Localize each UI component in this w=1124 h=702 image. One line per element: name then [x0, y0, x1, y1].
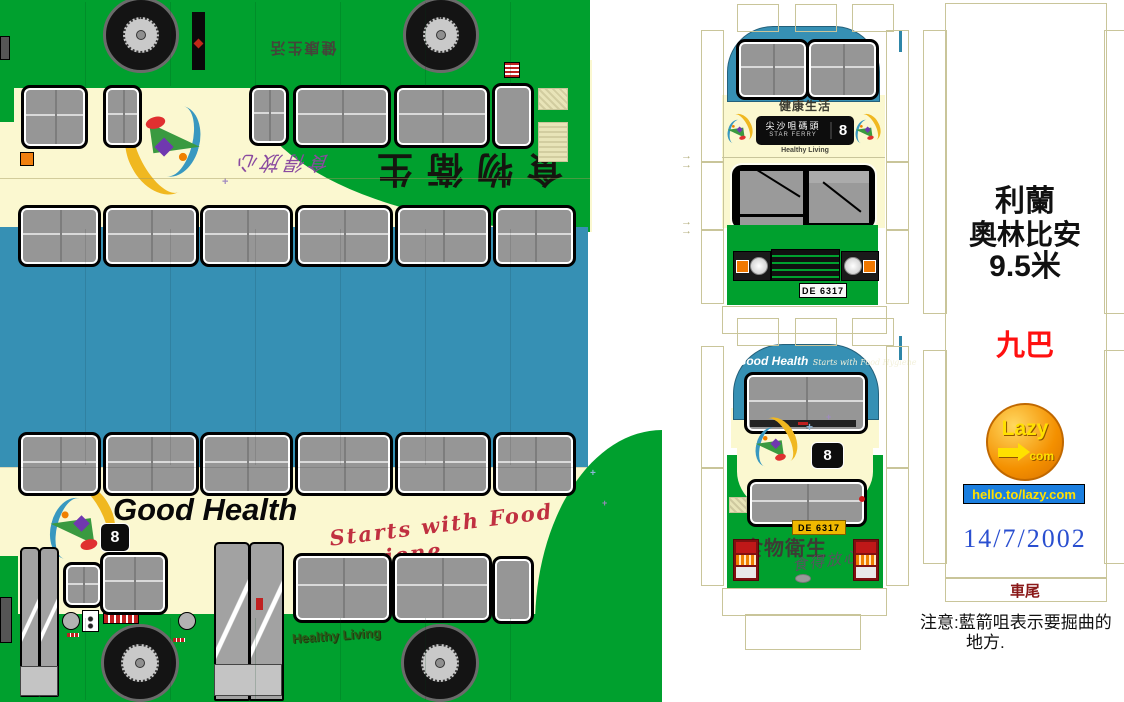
radiator-grille [771, 249, 840, 281]
side-top-edge [0, 88, 14, 122]
panel-seam [85, 229, 86, 465]
fold-tab [886, 468, 909, 586]
wheel-hub [421, 644, 458, 681]
bus-window [492, 83, 534, 149]
taillight-left [733, 539, 759, 581]
fold-line [0, 178, 590, 179]
panel-seam [510, 2, 511, 86]
panel-seam [340, 618, 341, 700]
bus-window [21, 85, 88, 149]
bus-window [100, 552, 168, 615]
fold-tab [745, 614, 861, 650]
small-red-decal [173, 638, 185, 642]
fold-tab [701, 230, 724, 304]
rear-vent [729, 497, 747, 513]
bus-window [103, 432, 199, 496]
front-sub-text: Healthy Living [770, 147, 840, 154]
fold-tab [1104, 30, 1124, 314]
bus-window [395, 432, 491, 496]
panel-seam [170, 229, 171, 465]
panel-seam [255, 2, 256, 86]
fuel-cap [178, 612, 196, 630]
wheel [103, 0, 179, 73]
panel-seam [510, 618, 511, 700]
fold-tab [701, 346, 724, 468]
bus-window [293, 553, 392, 623]
panel-seam [170, 2, 171, 86]
panel-seam [425, 2, 426, 86]
small-red-decal [67, 633, 79, 637]
papercraft-sheet: 健康生活 食物衛生 食得放心 Good Health Starts with F… [0, 0, 1124, 702]
model-name: 利蘭 奧林比安 9.5米 [945, 185, 1105, 284]
lazy-logo-sub: com [1029, 449, 1054, 463]
link-bar[interactable]: hello.to/lazy.com [963, 484, 1085, 504]
indicator-lamp [736, 260, 749, 273]
bus-window [295, 205, 393, 267]
panel-seam [425, 229, 426, 465]
fold-tab [701, 30, 724, 162]
lazy-logo: Lazy com [986, 403, 1064, 481]
fold-tab [795, 318, 837, 346]
fold-tab [886, 162, 909, 230]
model-line3: 9.5米 [945, 250, 1105, 284]
wheel-hub [423, 17, 459, 53]
rear-brand: Good Health Starts with Food Hygiene [737, 352, 873, 370]
indicator-lamp [863, 260, 876, 273]
wheel [101, 624, 179, 702]
red-figure-decal [256, 598, 263, 610]
destination-english: STAR FERRY [756, 132, 830, 139]
fold-tab [923, 350, 947, 564]
fold-tab [886, 346, 909, 468]
front-license-plate: DE 6317 [799, 283, 847, 298]
healthy-living-logo [753, 416, 803, 476]
lazy-arrow-icon [998, 448, 1018, 457]
fold-arrow-icon: → [681, 227, 692, 235]
bus-window [492, 556, 534, 624]
fold-tab [795, 4, 837, 32]
fold-tab [852, 318, 894, 346]
bus-window [395, 205, 491, 267]
bus-window [293, 85, 391, 148]
date-text: 14/7/2002 [945, 524, 1105, 554]
destination-chinese: 尖沙咀碼頭 [756, 122, 830, 132]
headlight-left [733, 251, 771, 281]
sparkle-icon: + [602, 498, 607, 508]
panel-seam [170, 618, 171, 700]
fold-tab [1104, 350, 1124, 564]
sparkle-icon: + [826, 412, 831, 422]
side-brand-text: Good Health [113, 492, 297, 528]
vent-grille [538, 122, 568, 162]
panel-seam [340, 229, 341, 465]
headlamp [750, 257, 768, 275]
sparkle-icon: + [806, 420, 813, 434]
panel-seam [85, 2, 86, 86]
taillight-right [853, 539, 879, 581]
fuel-cap [62, 612, 80, 630]
hazard-decal [504, 62, 520, 78]
sparkle-icon: + [590, 468, 596, 479]
side-route-number: 8 [101, 524, 129, 551]
model-line1: 利蘭 [945, 185, 1105, 219]
windscreen-right [809, 171, 869, 223]
wheel [403, 0, 479, 73]
headlamp [844, 257, 862, 275]
panel-seam [85, 618, 86, 700]
side-end-window [0, 597, 12, 643]
side-top-end-window [0, 36, 10, 60]
fold-line [0, 467, 588, 468]
bus-window [103, 85, 142, 148]
panel-seam [255, 229, 256, 465]
note-line2: 地方. [966, 628, 1005, 653]
bus-window [18, 432, 101, 496]
wheel-hub [121, 644, 158, 681]
bus-window [103, 205, 199, 267]
note-line1: 注意:藍箭咀表示要掘曲的 [920, 608, 1112, 633]
bus-window [200, 432, 293, 496]
model-line2: 奧林比安 [945, 219, 1105, 250]
bus-window [493, 205, 576, 267]
reflector-dot [859, 496, 865, 502]
windscreen-lower-left [740, 217, 803, 225]
rear-brand-text: Good Health [737, 354, 808, 368]
fold-tab [737, 318, 779, 346]
lazy-arrow-head-icon [1018, 443, 1030, 461]
bus-window [392, 553, 492, 623]
side-rotated-script: 食得放心 [220, 150, 344, 179]
bus-window [249, 85, 289, 146]
bus-window [63, 562, 103, 608]
bus-window [200, 205, 293, 267]
fold-tab [852, 4, 894, 32]
bus-window [736, 39, 809, 100]
fold-tab [722, 588, 887, 616]
fold-tab [701, 162, 724, 230]
rear-route-number: 8 [812, 443, 843, 468]
operator-name: 九巴 [945, 322, 1105, 364]
healthy-living-logo-mini [726, 113, 756, 149]
bus-window [493, 432, 576, 496]
rear-label: 車尾 [945, 580, 1105, 601]
healthy-living-logo-mini [854, 113, 884, 149]
front-door-step [20, 666, 58, 696]
bus-window [295, 432, 393, 496]
fold-tab [923, 30, 947, 314]
front-route-number: 8 [830, 122, 854, 139]
wheel [401, 624, 479, 702]
fold-line [722, 157, 885, 158]
panel-seam [255, 618, 256, 700]
orange-marker-decal [20, 152, 34, 166]
middle-door-step [214, 664, 282, 696]
fold-tab [701, 468, 724, 586]
fold-tab [886, 30, 909, 162]
wheel-hub [123, 17, 159, 53]
exhaust-outlet [795, 574, 811, 583]
panel-seam [425, 618, 426, 700]
bus-window [18, 205, 101, 267]
bus-window [806, 39, 879, 100]
headlight-right [841, 251, 879, 281]
panel-seam [340, 2, 341, 86]
bus-window [394, 85, 490, 148]
fold-tab [886, 230, 909, 304]
vent-grille [538, 88, 568, 110]
destination-display: 尖沙咀碼頭 STAR FERRY 8 [756, 116, 854, 145]
lazy-logo-text: Lazy [988, 417, 1062, 441]
fold-tab [737, 4, 779, 32]
fold-arrow-icon: → [681, 161, 692, 169]
panel-seam [510, 229, 511, 465]
